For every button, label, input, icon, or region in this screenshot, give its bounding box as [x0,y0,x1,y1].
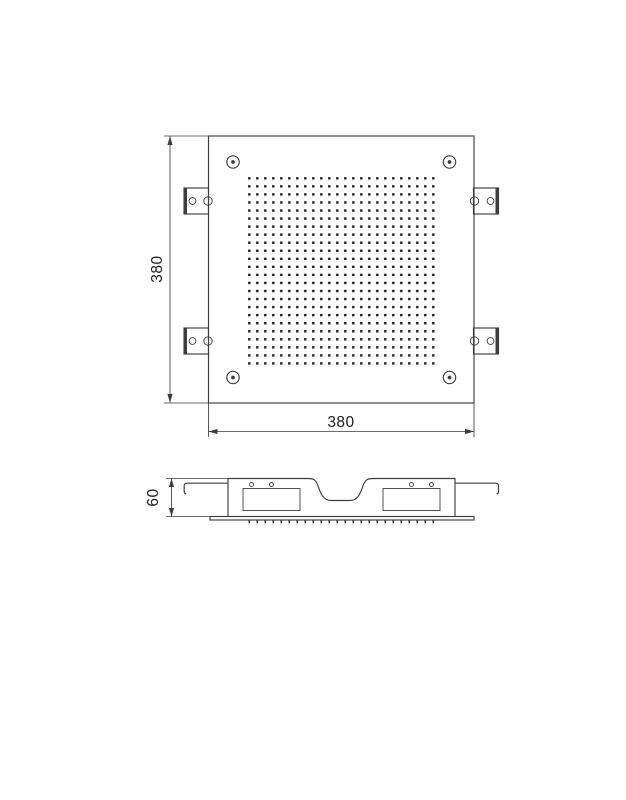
nozzle-dot [408,201,410,203]
nozzle-dot [352,274,354,276]
nozzle-dot [344,233,346,235]
nozzle-dot [400,290,402,292]
nozzle-dot [256,177,258,179]
nozzle-dot [368,306,370,308]
nozzle-dot [384,362,386,364]
nozzle-dot [280,346,282,348]
nozzle-dot [328,250,330,252]
nozzle-tick [249,520,251,523]
nozzle-dot [416,209,418,211]
nozzle-dot [352,177,354,179]
bracket-hole [189,338,196,345]
nozzle-dot [376,354,378,356]
nozzle-dot [360,242,362,244]
nozzle-dot [296,306,298,308]
nozzle-dot [424,217,426,219]
nozzle-dot [376,306,378,308]
nozzle-tick [321,520,323,523]
nozzle-dot [256,306,258,308]
nozzle-dot [344,250,346,252]
nozzle-dot [328,346,330,348]
nozzle-dot [320,362,322,364]
nozzle-dot [344,193,346,195]
nozzle-dot [272,217,274,219]
nozzle-dot [408,233,410,235]
nozzle-dot [248,314,250,316]
nozzle-dot [256,250,258,252]
nozzle-dot [384,274,386,276]
nozzle-dot [328,233,330,235]
water-chamber-right [383,489,440,511]
nozzle-dot [360,282,362,284]
nozzle-dot [272,362,274,364]
nozzle-dot [280,306,282,308]
nozzle-dot [384,338,386,340]
nozzle-dot [424,250,426,252]
nozzle-dot [296,242,298,244]
nozzle-dot [304,306,306,308]
nozzle-dot [400,185,402,187]
nozzle-dot [368,177,370,179]
nozzle-dot [376,233,378,235]
nozzle-dot [408,362,410,364]
nozzle-dot [392,338,394,340]
nozzle-dot [328,209,330,211]
nozzle-dot [336,354,338,356]
nozzle-dot [288,242,290,244]
nozzle-dot [424,282,426,284]
nozzle-tick [385,520,387,523]
nozzle-dot [416,362,418,364]
nozzle-dot [296,233,298,235]
nozzle-dot [264,298,266,300]
nozzle-dot [328,185,330,187]
nozzle-dot [320,250,322,252]
nozzle-dot [392,201,394,203]
nozzle-dot [256,225,258,227]
nozzle-dot [320,314,322,316]
nozzle-dot [384,233,386,235]
nozzle-dot [424,314,426,316]
nozzle-dot [392,354,394,356]
nozzle-dot [304,346,306,348]
nozzle-dot [304,330,306,332]
nozzle-dot [344,217,346,219]
nozzle-dot [424,177,426,179]
nozzle-dot [424,242,426,244]
nozzle-dot [336,362,338,364]
nozzle-dot [320,209,322,211]
nozzle-dot [248,193,250,195]
nozzle-dot [296,193,298,195]
nozzle-dot [432,322,434,324]
nozzle-dot [368,266,370,268]
nozzle-dot [296,258,298,260]
nozzle-dot [432,346,434,348]
nozzle-dot [336,314,338,316]
nozzle-dot [392,330,394,332]
nozzle-dot [400,193,402,195]
nozzle-dot [432,185,434,187]
nozzle-dot [304,177,306,179]
nozzle-dot [328,266,330,268]
nozzle-dot [280,258,282,260]
nozzle-dot [416,298,418,300]
nozzle-dot [320,282,322,284]
nozzle-dot [368,193,370,195]
nozzle-dot [384,209,386,211]
nozzle-dot [296,266,298,268]
nozzle-dot [416,225,418,227]
nozzle-dot [288,217,290,219]
nozzle-dot [400,282,402,284]
nozzle-dot [352,217,354,219]
nozzle-dot [248,233,250,235]
nozzle-dot [288,266,290,268]
nozzle-dot [376,177,378,179]
nozzle-dot [360,258,362,260]
nozzle-dot [344,209,346,211]
nozzle-dot [312,225,314,227]
nozzle-dot [288,290,290,292]
nozzle-dot [384,290,386,292]
nozzle-dot [344,282,346,284]
nozzle-dot [408,346,410,348]
nozzle-dot [280,298,282,300]
side-view: 60 [145,479,499,524]
nozzle-dot [248,242,250,244]
bracket-flange-edge [496,328,499,354]
nozzle-dot [336,209,338,211]
nozzle-dot [256,258,258,260]
nozzle-dot [416,258,418,260]
nozzle-dot [280,314,282,316]
inlet-hole [270,483,274,487]
nozzle-dot [312,274,314,276]
nozzle-dot [352,362,354,364]
nozzle-dot [408,282,410,284]
nozzle-dot [272,258,274,260]
nozzle-dot [320,201,322,203]
nozzle-dot [408,338,410,340]
nozzle-dot [312,250,314,252]
nozzle-dot [312,330,314,332]
nozzle-dot [280,209,282,211]
nozzle-dot [256,282,258,284]
nozzle-dot [408,250,410,252]
nozzle-dot [256,330,258,332]
nozzle-dot [392,322,394,324]
nozzle-dot [360,233,362,235]
nozzle-dot [376,250,378,252]
nozzle-tick [281,520,283,523]
nozzle-dot [288,177,290,179]
nozzle-dot [328,354,330,356]
nozzle-dot [304,274,306,276]
nozzle-dot [392,298,394,300]
nozzle-tick [345,520,347,523]
bracket-hole [189,198,196,205]
nozzle-dot [424,338,426,340]
nozzle-dot [272,225,274,227]
technical-drawing-canvas: 380 380 [0,0,626,800]
nozzle-dot [432,290,434,292]
nozzle-dot [416,282,418,284]
nozzle-dot [288,209,290,211]
nozzle-dot [432,225,434,227]
nozzle-dot [432,242,434,244]
nozzle-dot [376,290,378,292]
nozzle-dot [296,290,298,292]
nozzle-tick [417,520,419,523]
nozzle-dot [256,298,258,300]
nozzle-dot [336,185,338,187]
nozzle-dot [264,266,266,268]
nozzle-dot [416,242,418,244]
nozzle-dot [432,282,434,284]
nozzle-dot [384,193,386,195]
water-chamber-left [243,489,300,511]
nozzle-dot [424,322,426,324]
nozzle-dot [360,322,362,324]
nozzle-dot [344,306,346,308]
nozzle-dot [296,322,298,324]
nozzle-dot [256,274,258,276]
nozzle-dot [304,209,306,211]
nozzle-dot [368,314,370,316]
nozzle-dot [320,177,322,179]
nozzle-dot [352,314,354,316]
nozzle-dot [304,193,306,195]
nozzle-dot [256,322,258,324]
nozzle-dot [416,322,418,324]
nozzle-dot [336,282,338,284]
nozzle-dot [336,322,338,324]
nozzle-dot [432,233,434,235]
nozzle-dot [248,298,250,300]
bracket-flange-edge [496,188,499,214]
nozzle-dot [264,250,266,252]
nozzle-dot [272,193,274,195]
nozzle-dot [336,258,338,260]
nozzle-dot [376,201,378,203]
nozzle-dot [256,185,258,187]
nozzle-dot [264,346,266,348]
nozzle-dot [320,217,322,219]
nozzle-tick [329,520,331,523]
nozzle-dot [280,330,282,332]
nozzle-dot [376,362,378,364]
nozzle-dot [424,185,426,187]
nozzle-dot [296,330,298,332]
nozzle-dot [384,330,386,332]
nozzle-dot [368,338,370,340]
nozzle-dot [328,201,330,203]
nozzle-dot [408,354,410,356]
nozzle-dot [360,209,362,211]
nozzle-dot [408,266,410,268]
nozzle-dot [368,201,370,203]
nozzle-dot [248,338,250,340]
nozzle-tick [393,520,395,523]
arrowhead-left [209,429,218,434]
nozzle-dot [336,330,338,332]
nozzle-dot [328,330,330,332]
nozzle-dot [360,177,362,179]
nozzle-dot [336,233,338,235]
nozzle-tick [257,520,259,523]
nozzle-dot [248,250,250,252]
nozzle-dot [424,258,426,260]
nozzle-dot [304,314,306,316]
nozzle-tick [361,520,363,523]
nozzle-dot [256,217,258,219]
nozzle-dot [288,354,290,356]
bracket-flange-edge [184,188,187,214]
nozzle-dot [288,282,290,284]
nozzle-dot [312,282,314,284]
nozzle-dot [424,233,426,235]
nozzle-dot [272,282,274,284]
nozzle-dot [400,225,402,227]
nozzle-dot [368,233,370,235]
nozzle-dot [336,346,338,348]
nozzle-dot [328,314,330,316]
nozzle-dot [352,346,354,348]
nozzle-dot [392,306,394,308]
nozzle-dot [400,314,402,316]
corner-screw-bottom-left [227,371,239,383]
nozzle-dot [272,346,274,348]
nozzle-dot [432,298,434,300]
nozzle-dot [400,362,402,364]
nozzle-dot [376,185,378,187]
nozzle-dot [296,362,298,364]
nozzle-dot [280,193,282,195]
nozzle-dot [360,217,362,219]
nozzle-dot [344,298,346,300]
nozzle-dot [376,338,378,340]
nozzle-dot [432,266,434,268]
nozzle-dot [304,233,306,235]
nozzle-dot [352,209,354,211]
nozzle-dot [312,314,314,316]
arrowhead-down [167,394,172,403]
nozzle-dot [400,354,402,356]
nozzle-dot [352,338,354,340]
nozzle-dot [312,193,314,195]
nozzle-dot [344,354,346,356]
nozzle-dot [368,217,370,219]
nozzle-dot [344,362,346,364]
nozzle-dot [432,274,434,276]
nozzle-dot [432,362,434,364]
nozzle-dot [264,177,266,179]
nozzle-dot [264,362,266,364]
bracket-flange-edge [184,328,187,354]
nozzle-dot [416,314,418,316]
nozzle-dot [384,282,386,284]
nozzle-dot [384,250,386,252]
nozzle-dot [280,177,282,179]
nozzle-dot [400,209,402,211]
nozzle-dot [360,201,362,203]
nozzle-tick [265,520,267,523]
nozzle-dot [288,233,290,235]
nozzle-dot [328,298,330,300]
nozzle-dot [296,298,298,300]
nozzle-dot [312,258,314,260]
nozzle-dot [320,354,322,356]
nozzle-dot [432,201,434,203]
nozzle-tick [409,520,411,523]
nozzle-dot [432,354,434,356]
nozzle-dot [392,282,394,284]
nozzle-dot [432,193,434,195]
nozzle-dot [392,258,394,260]
nozzle-dot [424,209,426,211]
nozzle-dot [264,338,266,340]
nozzle-dot [416,290,418,292]
nozzle-dot [264,209,266,211]
inlet-hole [430,483,434,487]
nozzle-dot [344,338,346,340]
nozzle-dot [424,298,426,300]
nozzle-dot [256,362,258,364]
nozzle-dot [424,201,426,203]
nozzle-dot [408,177,410,179]
nozzle-dot [392,290,394,292]
nozzle-dot [280,338,282,340]
nozzle-dot [256,242,258,244]
nozzle-dot [248,209,250,211]
nozzle-dot [272,177,274,179]
nozzle-dot [424,266,426,268]
nozzle-dot [344,177,346,179]
nozzle-dot [304,362,306,364]
nozzle-dot [416,217,418,219]
mounting-hook-left [184,483,228,494]
corner-screw-top-left [227,156,239,168]
nozzle-dot [408,209,410,211]
nozzle-dot [408,242,410,244]
nozzle-dot [424,274,426,276]
nozzle-dot [320,266,322,268]
nozzle-dot [272,298,274,300]
nozzle-dot [352,306,354,308]
nozzle-dot [272,274,274,276]
nozzle-dot [312,177,314,179]
nozzle-dot [368,225,370,227]
top-view: 380 380 [149,136,499,437]
nozzle-dot [352,354,354,356]
nozzle-dot [296,354,298,356]
nozzle-dot [384,306,386,308]
nozzle-dot [368,346,370,348]
nozzle-dot [264,306,266,308]
nozzle-dot [416,330,418,332]
nozzle-dot [256,201,258,203]
nozzle-dot [408,290,410,292]
nozzle-dot [384,177,386,179]
nozzle-dot [408,193,410,195]
nozzle-dot [264,274,266,276]
nozzle-dot [400,338,402,340]
nozzle-dot [328,274,330,276]
nozzle-tick [433,520,435,523]
nozzle-dot [248,274,250,276]
nozzle-dot [248,330,250,332]
